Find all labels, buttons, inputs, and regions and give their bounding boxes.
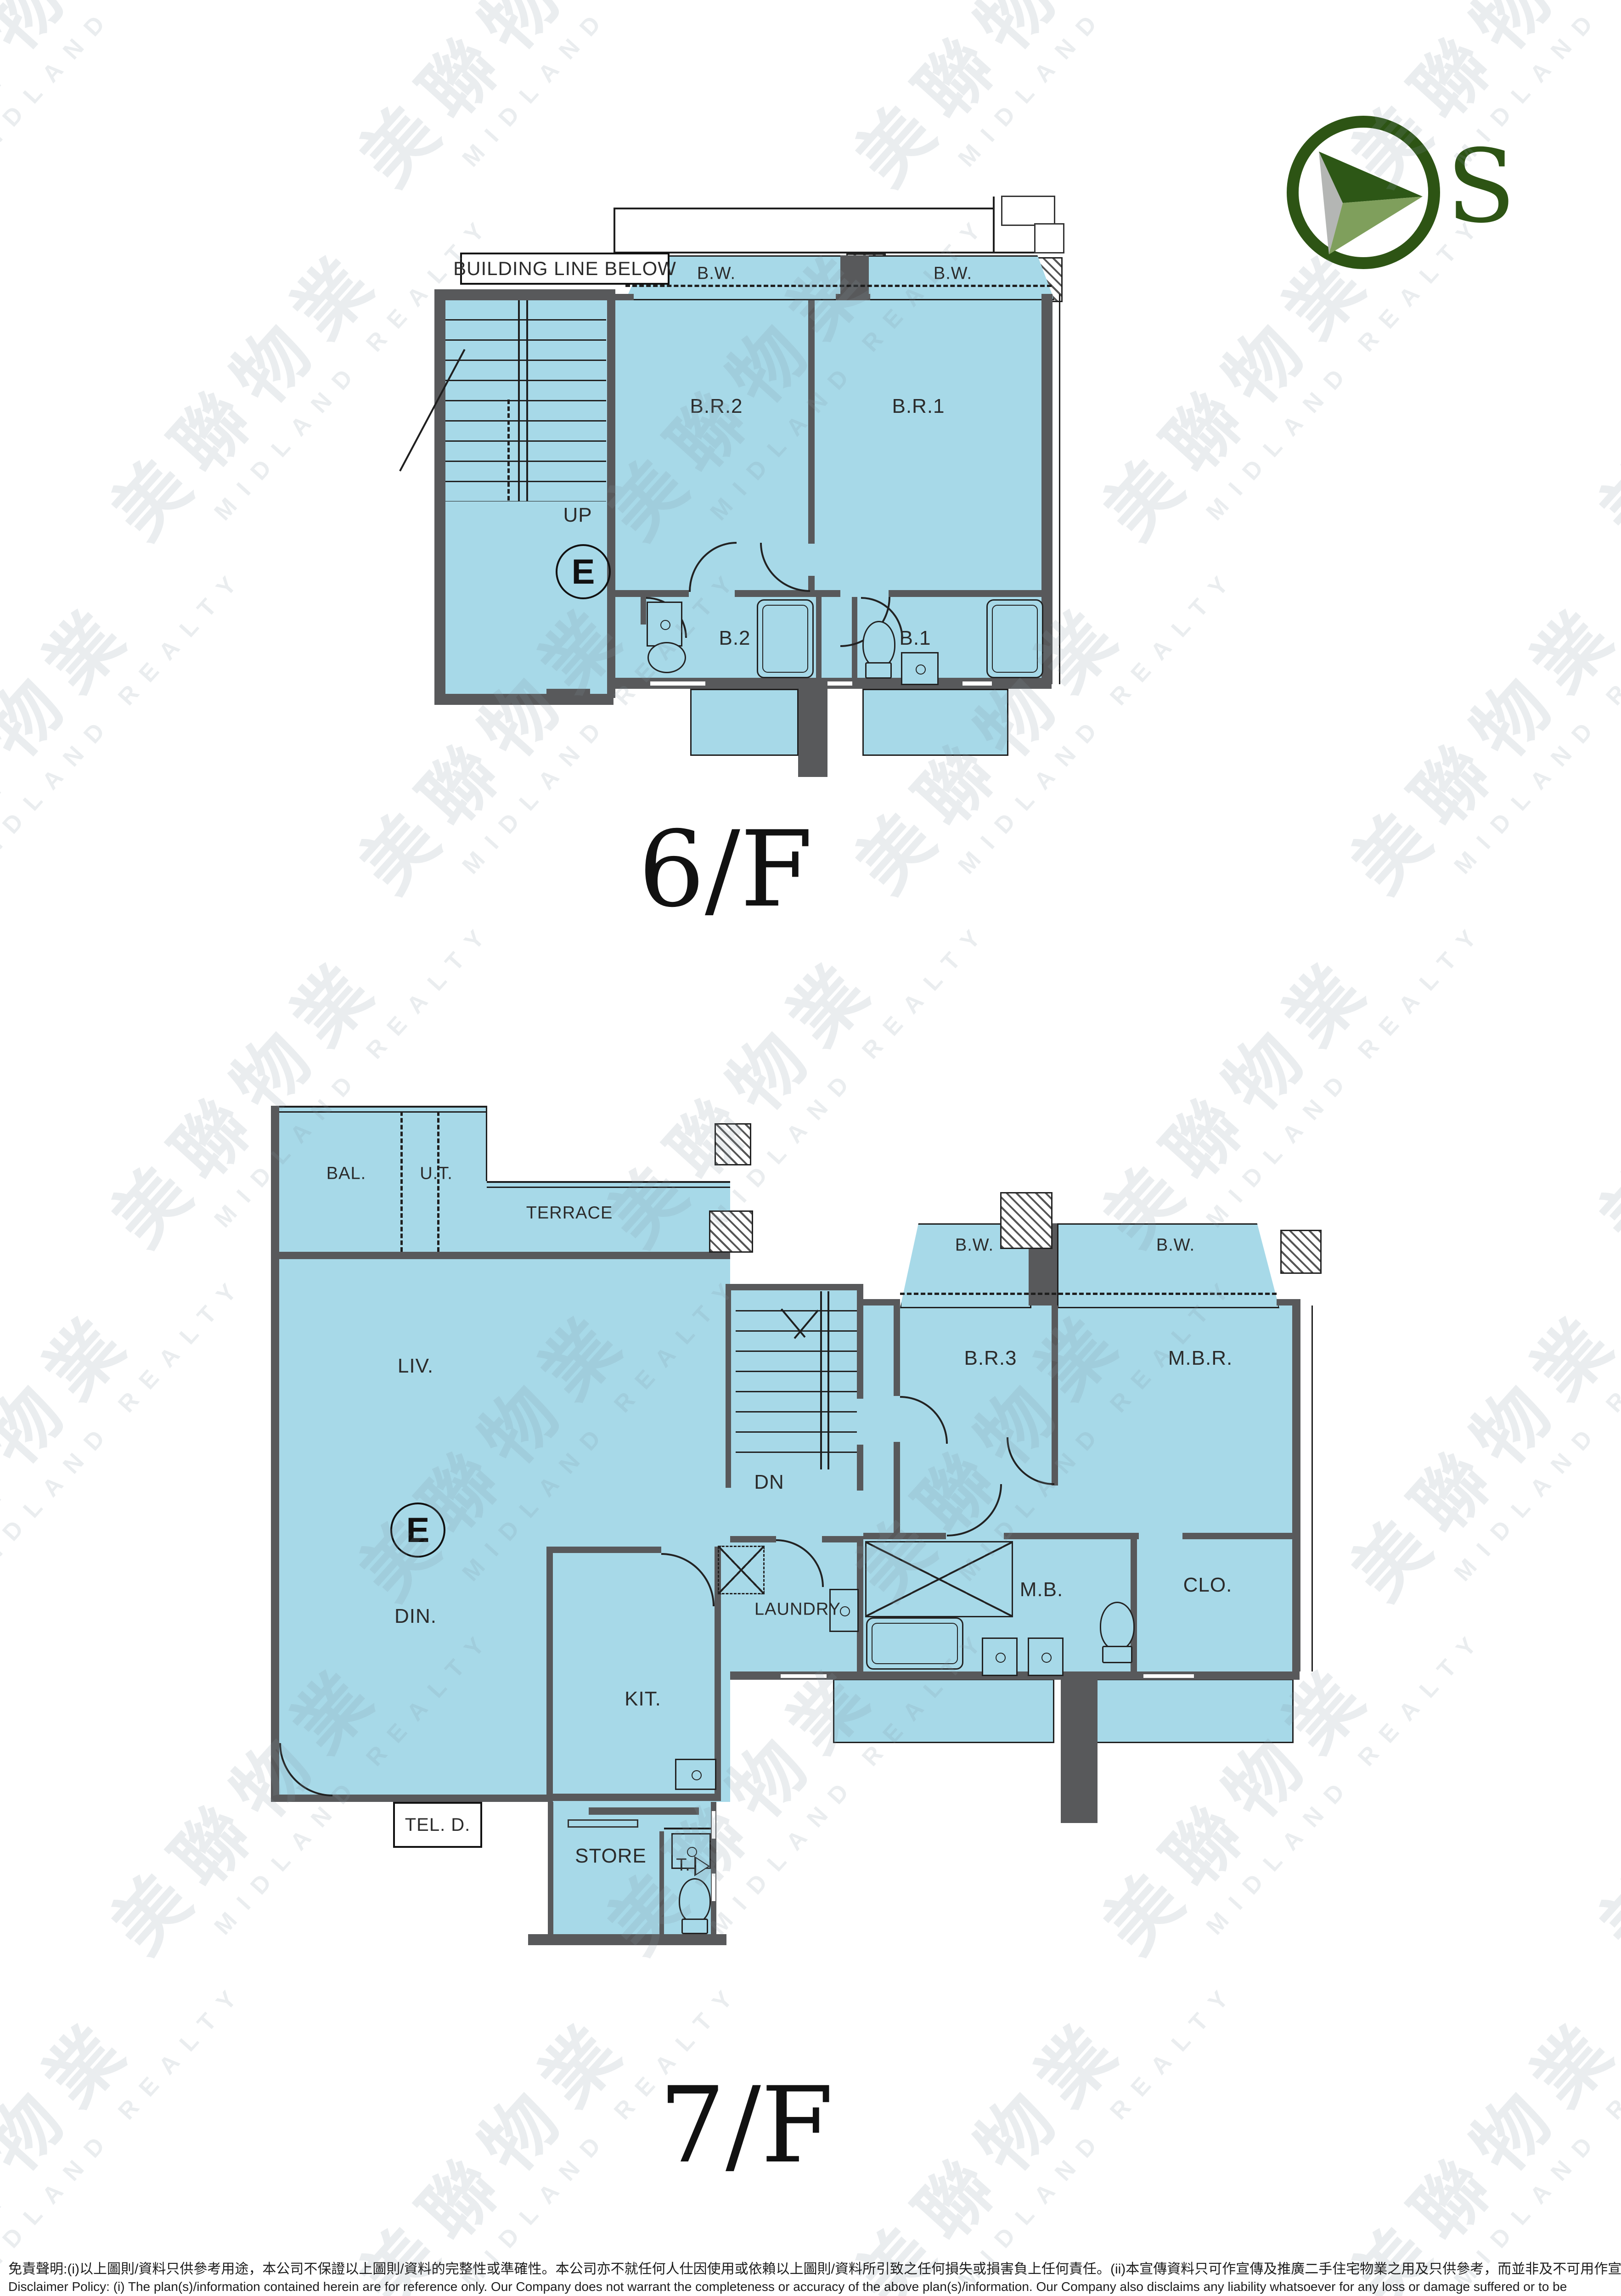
stair-dn-label: DN xyxy=(754,1471,784,1494)
bathtub-icon xyxy=(757,599,814,678)
watermark-en-text: MIDLAND REALTY xyxy=(0,561,251,879)
railing xyxy=(487,1181,730,1183)
staircase-7f xyxy=(736,1291,857,1469)
watermark-cn-text: 美聯物業 xyxy=(1571,136,1621,557)
room-label-teld: TEL. D. xyxy=(405,1815,471,1835)
watermark-cn-text: 美聯物業 xyxy=(1571,843,1621,1264)
toilet-base-icon xyxy=(681,1919,708,1934)
watermark-cn-text: 美聯物業 xyxy=(331,0,725,204)
room-label-bw: B.W. xyxy=(697,264,736,284)
wall xyxy=(863,1533,946,1539)
watermark-logo: 美聯物業MIDLAND REALTY xyxy=(0,0,251,224)
wall xyxy=(836,294,870,300)
watermark-en-text: MIDLAND REALTY xyxy=(1201,915,1491,1233)
watermark-cn-text: 美聯物業 xyxy=(1323,1197,1621,1618)
wall xyxy=(546,1547,553,1801)
window xyxy=(781,1674,827,1678)
toilet-icon xyxy=(862,621,895,668)
watermark-cn-text: 美聯物業 xyxy=(1323,1904,1621,2296)
wall xyxy=(1292,1306,1300,1671)
floor-title-6f: 6/F xyxy=(638,808,813,930)
room-label-din: DIN. xyxy=(394,1605,437,1628)
watermark-logo: 美聯物業MIDLAND REALTY xyxy=(1323,1904,1621,2296)
window xyxy=(962,681,992,686)
room-label-mbr: M.B.R. xyxy=(1168,1347,1233,1370)
outer-line xyxy=(1059,294,1060,684)
watermark-logo: 美聯物業MIDLAND REALTY xyxy=(0,1904,251,2296)
floorplan-page: S BUILDING LINE BELOW xyxy=(0,0,1621,2296)
wall xyxy=(726,1290,731,1488)
building-line-label: BUILDING LINE BELOW xyxy=(453,258,676,280)
room-label-bw: B.W. xyxy=(1156,1236,1195,1255)
wall xyxy=(434,289,445,705)
watermark-en-text: MIDLAND REALTY xyxy=(1449,1268,1621,1587)
watermark-logo: 美聯物業MIDLAND REALTY xyxy=(1571,1550,1621,1991)
window xyxy=(650,681,705,686)
wall xyxy=(857,1445,863,1491)
wall xyxy=(1004,1533,1139,1539)
sink-icon xyxy=(647,602,682,647)
shelf xyxy=(589,1807,699,1815)
sink-icon xyxy=(982,1638,1018,1676)
watermark-logo: 美聯物業MIDLAND REALTY xyxy=(827,0,1243,224)
wall xyxy=(271,1106,279,1802)
watermark-cn-text: 美聯物業 xyxy=(1571,1550,1621,1971)
roof-line xyxy=(614,208,995,209)
room-label-liv: LIV. xyxy=(398,1355,433,1378)
wall-line xyxy=(664,1828,711,1829)
watermark-logo: 美聯物業MIDLAND REALTY xyxy=(0,490,251,930)
roof-line xyxy=(993,197,995,253)
window xyxy=(1143,1674,1194,1678)
room-label-bw: B.W. xyxy=(955,1236,994,1255)
wall xyxy=(730,1536,776,1542)
wall xyxy=(808,300,815,544)
watermark-en-text: MIDLAND REALTY xyxy=(0,1268,251,1587)
railing xyxy=(278,1111,487,1113)
wall xyxy=(1182,1533,1300,1539)
bathtub-icon xyxy=(986,599,1043,678)
wall xyxy=(548,1802,553,1942)
toilet-icon xyxy=(679,1878,711,1923)
watermark-en-text: MIDLAND REALTY xyxy=(1449,561,1621,879)
room-label-kit: KIT. xyxy=(625,1688,661,1711)
lift-letter: E xyxy=(572,552,595,592)
watermark-logo: 美聯物業MIDLAND REALTY xyxy=(1323,1197,1621,1638)
wall xyxy=(889,590,1052,597)
room-label-laundry: LAUNDRY xyxy=(754,1600,841,1620)
roof-line xyxy=(614,208,615,253)
flat-roof xyxy=(1081,1679,1294,1743)
window xyxy=(712,1811,715,1839)
room-label-br3: B.R.3 xyxy=(964,1347,1017,1370)
stair-rail xyxy=(820,1291,822,1469)
toilet-base-icon xyxy=(1102,1646,1132,1663)
wall xyxy=(546,1547,661,1553)
wall xyxy=(863,1299,900,1306)
stair-rail xyxy=(526,300,528,501)
living-dining-7f xyxy=(278,1258,730,1802)
watermark-en-text: MIDLAND REALTY xyxy=(705,915,995,1233)
room-label-clo: CLO. xyxy=(1183,1574,1233,1597)
railing xyxy=(487,1187,730,1188)
bay-window-dashed-line xyxy=(625,285,1052,287)
wall xyxy=(840,255,869,298)
toilet-base-icon xyxy=(865,662,892,679)
room-label-bw: B.W. xyxy=(934,264,972,284)
room-label-mb: M.B. xyxy=(1020,1578,1063,1601)
wall xyxy=(271,1795,553,1802)
wall xyxy=(271,1252,730,1259)
watermark-cn-text: 美聯物業 xyxy=(0,1904,230,2296)
watermark-en-text: MIDLAND REALTY xyxy=(457,0,747,172)
watermark-cn-text: 美聯物業 xyxy=(1323,490,1621,911)
washer-icon xyxy=(718,1546,765,1594)
toilet-icon xyxy=(1100,1602,1135,1650)
disclaimer-zh: 免責聲明:(i)以上圖則/資料只供參考用途，本公司不保證以上圖則/資料的完整性或… xyxy=(8,2260,1613,2279)
watermark-logo: 美聯物業MIDLAND REALTY xyxy=(331,0,747,224)
room-label-bal: BAL. xyxy=(326,1164,366,1184)
sink-icon xyxy=(1028,1638,1064,1676)
wall xyxy=(894,1442,900,1534)
roof-line xyxy=(614,252,1053,253)
watermark-en-text: MIDLAND REALTY xyxy=(953,0,1243,172)
disclaimer-en: Disclaimer Policy: (i) The plan(s)/infor… xyxy=(8,2279,1613,2296)
wall xyxy=(735,590,840,597)
floor-title-7f: 7/F xyxy=(659,2064,833,2186)
wall xyxy=(726,1284,863,1290)
watermark-cn-text: 美聯物業 xyxy=(827,1904,1221,2296)
watermark-cn-text: 美聯物業 xyxy=(83,136,477,557)
wall xyxy=(434,289,614,300)
lift-letter: E xyxy=(406,1510,430,1550)
wall xyxy=(1061,1671,1098,1823)
watermark-logo: 美聯物業MIDLAND REALTY xyxy=(1571,136,1621,577)
column-hatch xyxy=(1280,1230,1322,1274)
bay-window-dashed-line xyxy=(900,1293,1277,1295)
roof-box xyxy=(1001,196,1055,226)
wall xyxy=(894,1306,900,1396)
wall xyxy=(528,1934,726,1945)
room-label-b1: B.1 xyxy=(899,627,931,650)
sink-icon xyxy=(901,652,939,685)
bathtub-icon xyxy=(866,1617,963,1670)
watermark-en-text: MIDLAND REALTY xyxy=(0,1975,251,2294)
flat-roof xyxy=(833,1679,1054,1743)
watermark-cn-text: 美聯物業 xyxy=(0,0,230,204)
room-label-td: T. xyxy=(676,1856,691,1875)
watermark-en-text: MIDLAND REALTY xyxy=(953,1975,1243,2294)
column-hatch xyxy=(1000,1192,1053,1249)
room-label-terrace: TERRACE xyxy=(526,1204,613,1223)
staircase-6f xyxy=(445,300,606,501)
room-label-store: STORE xyxy=(575,1845,647,1868)
wall xyxy=(607,289,615,698)
bal-ut-dashed-line xyxy=(400,1111,403,1252)
toilet-icon xyxy=(647,642,686,673)
room-label-b2: B.2 xyxy=(719,627,750,650)
disclaimer: 免責聲明:(i)以上圖則/資料只供參考用途，本公司不保證以上圖則/資料的完整性或… xyxy=(8,2260,1613,2296)
room-label-br2: B.R.2 xyxy=(690,395,743,418)
stair-up-label: UP xyxy=(563,504,592,527)
stair-rail xyxy=(827,1291,829,1469)
flat-roof xyxy=(690,689,799,756)
outer-line xyxy=(1311,1306,1313,1671)
wall xyxy=(546,1794,721,1801)
watermark-logo: 美聯物業MIDLAND REALTY xyxy=(827,1904,1243,2296)
watermark-logo: 美聯物業MIDLAND REALTY xyxy=(0,1197,251,1638)
sink-icon xyxy=(675,1759,716,1790)
watermark-logo: 美聯物業MIDLAND REALTY xyxy=(1075,843,1491,1284)
compass-south-label: S xyxy=(1447,128,1516,245)
wall xyxy=(641,597,646,625)
watermark-cn-text: 美聯物業 xyxy=(1075,843,1469,1264)
lift-symbol: E xyxy=(556,544,611,599)
railing xyxy=(486,1106,487,1181)
wall xyxy=(613,590,689,597)
stair-rail xyxy=(518,300,520,501)
watermark-cn-text: 美聯物業 xyxy=(0,490,230,911)
watermark-logo: 美聯物業MIDLAND REALTY xyxy=(1571,843,1621,1284)
watermark-en-text: MIDLAND REALTY xyxy=(1449,1975,1621,2294)
wall xyxy=(798,680,827,777)
balcony-ut-7f xyxy=(278,1106,487,1258)
roof-box xyxy=(1034,223,1064,253)
room-label-ut: U.T. xyxy=(420,1164,453,1184)
railing xyxy=(278,1106,487,1108)
wall xyxy=(659,1831,664,1934)
wall xyxy=(857,1284,863,1399)
wall xyxy=(1277,1299,1300,1306)
wall xyxy=(613,294,634,300)
column-hatch xyxy=(709,1210,753,1253)
shelf xyxy=(568,1819,638,1828)
compass-needle-icon xyxy=(1287,116,1440,269)
wall xyxy=(546,689,590,704)
stair-dashed-line xyxy=(507,400,510,501)
watermark-cn-text: 美聯物業 xyxy=(827,0,1221,204)
td-triangle-icon xyxy=(694,1856,710,1876)
watermark-en-text: MIDLAND REALTY xyxy=(0,0,251,172)
lift-symbol: E xyxy=(390,1503,445,1558)
flat-roof xyxy=(862,689,1008,756)
column-hatch xyxy=(715,1123,751,1165)
room-label-br1: B.R.1 xyxy=(892,395,945,418)
watermark-cn-text: 美聯物業 xyxy=(0,1197,230,1618)
watermark-logo: 美聯物業MIDLAND REALTY xyxy=(1323,490,1621,930)
wall xyxy=(816,597,822,678)
shower-icon xyxy=(865,1541,1013,1617)
window xyxy=(712,1874,715,1901)
